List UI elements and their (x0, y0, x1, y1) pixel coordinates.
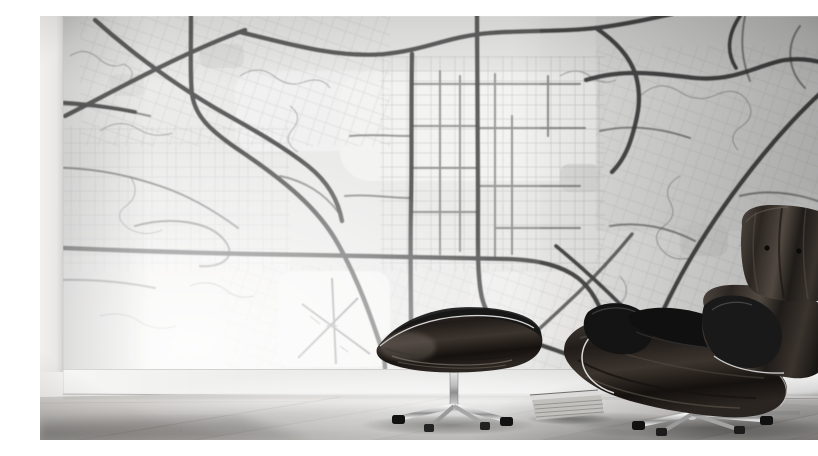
scene-canvas (40, 16, 818, 440)
photo-vignette (40, 16, 818, 440)
photo-scene: Black and white photograph of a room int… (40, 16, 818, 440)
